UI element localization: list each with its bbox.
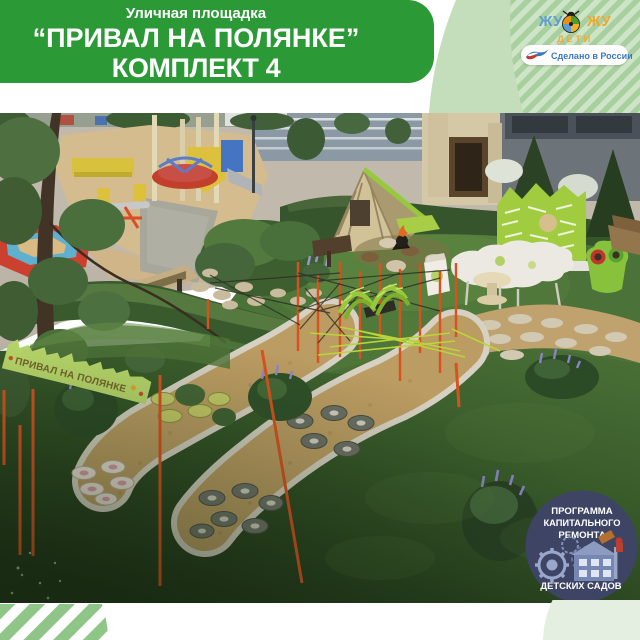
svg-text:КАПИТАЛЬНОГО: КАПИТАЛЬНОГО (543, 518, 620, 528)
svg-text:ПРОГРАММА: ПРОГРАММА (551, 506, 613, 517)
svg-text:ДЕТСКИХ САДОВ: ДЕТСКИХ САДОВ (540, 580, 621, 591)
